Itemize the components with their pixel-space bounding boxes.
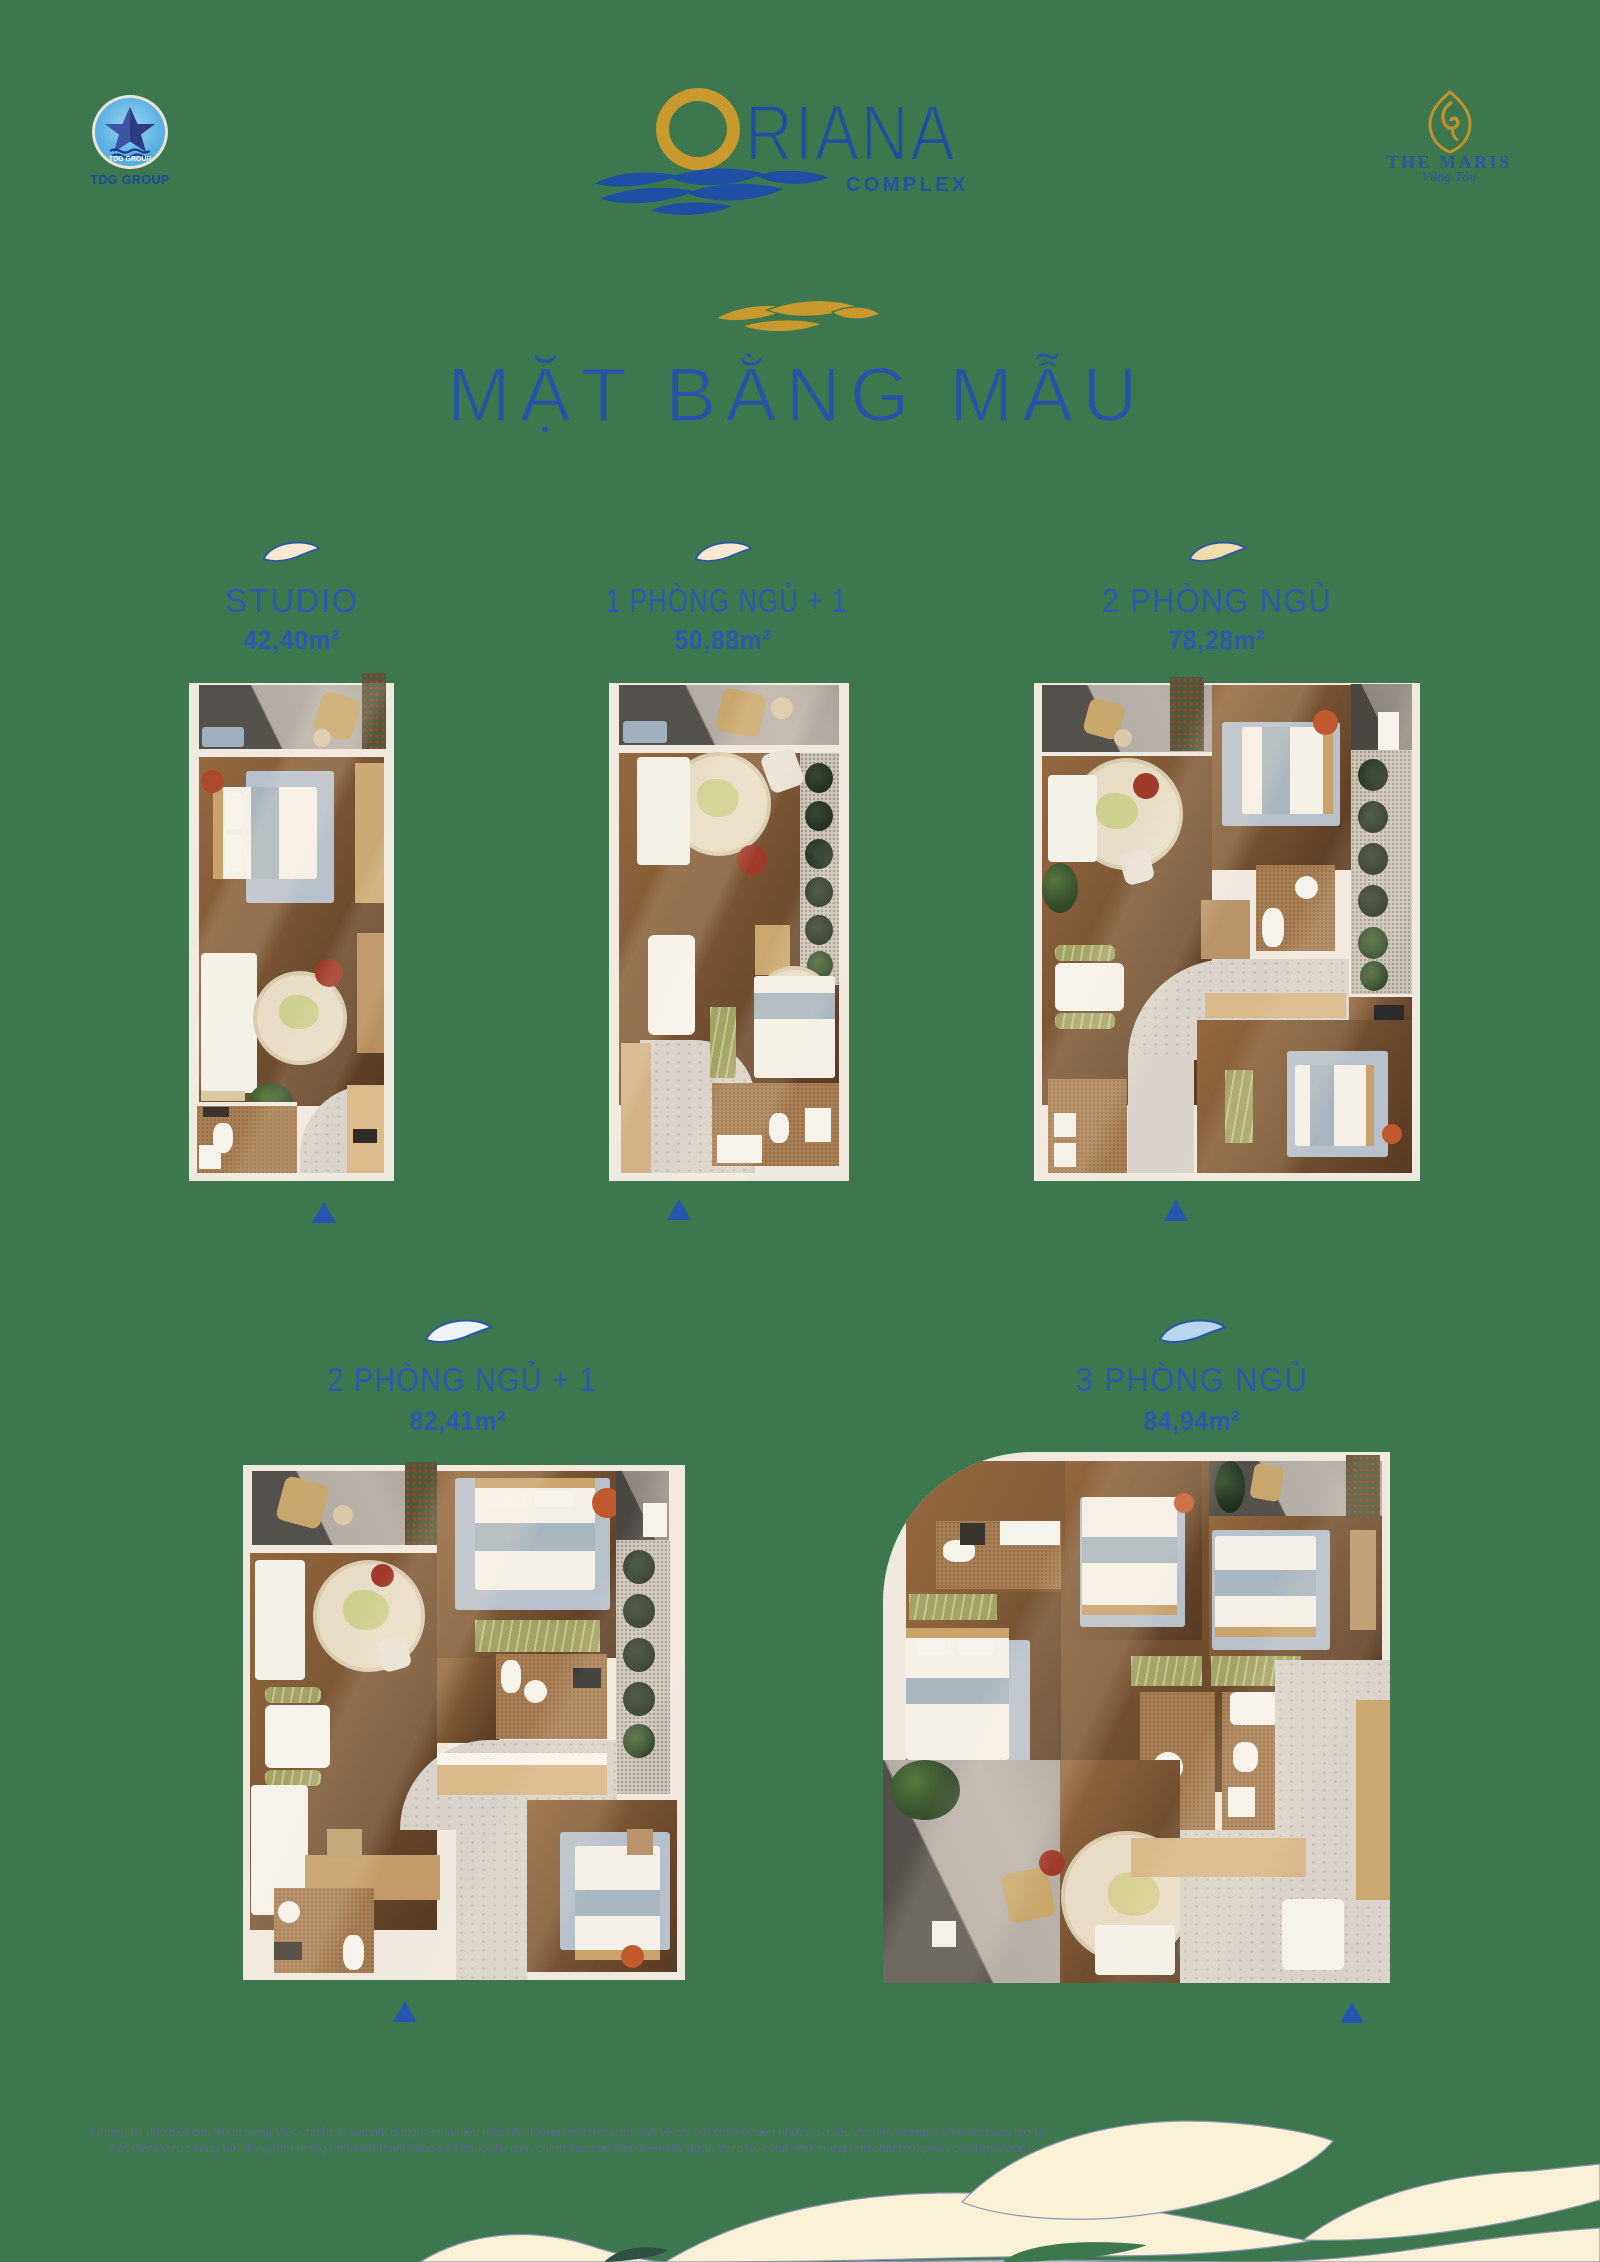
svg-text:TDG GROUP: TDG GROUP xyxy=(109,156,152,163)
